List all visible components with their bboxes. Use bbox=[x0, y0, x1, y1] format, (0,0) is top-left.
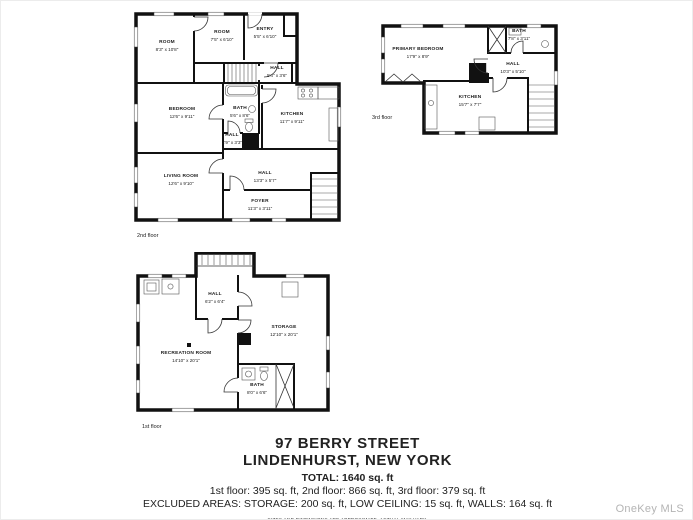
room-label: STORAGE 12'10" x 20'1" bbox=[270, 325, 298, 339]
room-name: HALL bbox=[222, 133, 242, 140]
room-dims: 10'3" x 5'10" bbox=[500, 69, 525, 76]
room-name: STORAGE bbox=[270, 325, 298, 332]
room-label: LIVING ROOM 12'6" x 9'10" bbox=[164, 174, 198, 188]
room-label: HALL 6'2" x 6'4" bbox=[205, 292, 225, 306]
room-label: HALL 13'3" x 5'7" bbox=[254, 171, 277, 185]
room-name: KITCHEN bbox=[459, 95, 482, 102]
room-dims: 13'3" x 5'7" bbox=[254, 178, 277, 185]
room-label: ENTRY 5'5" x 6'10" bbox=[254, 27, 277, 41]
room-dims: 5'5" x 6'10" bbox=[254, 34, 277, 41]
room-label: HALL 10'3" x 5'10" bbox=[500, 62, 525, 76]
floorplan-3rd-floor: PRIMARY BEDROOM 17'9" x 8'9" BATH 7'8" x… bbox=[381, 23, 559, 135]
room-name: BEDROOM bbox=[169, 107, 195, 114]
bathtub-icon bbox=[226, 85, 258, 96]
room-label: HALL 5'4" x 3'6" bbox=[267, 66, 287, 80]
chimney-block bbox=[242, 133, 259, 149]
room-label: FOYER 11'3" x 3'11" bbox=[248, 199, 273, 213]
floor-label-2nd: 2nd floor bbox=[137, 233, 158, 239]
room-name: LIVING ROOM bbox=[164, 174, 198, 181]
room-name: ROOM bbox=[156, 40, 179, 47]
stairs-icon bbox=[196, 254, 254, 266]
room-label: RECREATION ROOM 14'10" x 20'1" bbox=[161, 351, 212, 365]
room-dims: 5'4" x 3'6" bbox=[267, 73, 287, 80]
room-name: RECREATION ROOM bbox=[161, 351, 212, 358]
floorplan-1st-drawing bbox=[136, 252, 330, 414]
toilet-icon bbox=[260, 367, 268, 381]
room-dims: 7'5" x 6'10" bbox=[211, 37, 234, 44]
support-post bbox=[187, 343, 191, 347]
room-name: HALL bbox=[500, 62, 525, 69]
laundry-fixtures-icon bbox=[144, 279, 179, 294]
room-dims: 8'0" x 6'6" bbox=[247, 390, 267, 397]
room-label: ROOM 8'3" x 10'8" bbox=[156, 40, 179, 54]
address-block: 97 BERRY STREET LINDENHURST, NEW YORK TO… bbox=[1, 436, 693, 520]
toilet-icon bbox=[245, 119, 253, 132]
floorplan-1st-floor: HALL 6'2" x 6'4" STORAGE 12'10" x 20'1" … bbox=[136, 252, 330, 414]
room-name: BATH bbox=[508, 29, 530, 36]
floorplan-3rd-drawing bbox=[381, 23, 559, 135]
sink-icon bbox=[242, 368, 255, 380]
room-dims: 2'9" x 3'3" bbox=[222, 140, 242, 147]
room-name: HALL bbox=[267, 66, 287, 73]
excluded-areas: EXCLUDED AREAS: STORAGE: 200 sq. ft, LOW… bbox=[1, 498, 693, 510]
total-area: TOTAL: 1640 sq. ft bbox=[1, 472, 693, 484]
room-dims: 11'7" x 9'11" bbox=[280, 119, 305, 126]
chimney-block bbox=[238, 333, 251, 345]
room-name: BATH bbox=[247, 383, 267, 390]
closet-x-icon bbox=[488, 26, 506, 53]
storage-fixture-icon bbox=[282, 282, 298, 297]
room-name: HALL bbox=[254, 171, 277, 178]
address-city: LINDENHURST, NEW YORK bbox=[1, 453, 693, 470]
room-dims: 12'6" x 9'10" bbox=[164, 181, 198, 188]
floor-label-3rd: 3rd floor bbox=[372, 115, 392, 121]
floorplan-sheet: ROOM 8'3" x 10'8" ROOM 7'5" x 6'10" ENTR… bbox=[0, 0, 693, 520]
room-name: ROOM bbox=[211, 30, 234, 37]
stairs-icon bbox=[529, 85, 555, 127]
room-dims: 6'2" x 6'4" bbox=[205, 299, 225, 306]
room-name: FOYER bbox=[248, 199, 273, 206]
room-label: BATH 8'0" x 6'6" bbox=[247, 383, 267, 397]
room-label: KITCHEN 11'7" x 9'11" bbox=[280, 112, 305, 126]
onekey-mls-watermark: OneKey MLS bbox=[616, 503, 684, 515]
address-street: 97 BERRY STREET bbox=[1, 436, 693, 453]
room-label: BATH 5'6" x 8'6" bbox=[230, 106, 250, 120]
room-dims: 17'9" x 8'9" bbox=[392, 54, 443, 61]
floor-areas: 1st floor: 395 sq. ft, 2nd floor: 866 sq… bbox=[1, 485, 693, 497]
room-dims: 7'8" x 3'11" bbox=[508, 36, 530, 43]
room-label: BEDROOM 12'6" x 9'11" bbox=[169, 107, 195, 121]
room-dims: 12'10" x 20'1" bbox=[270, 332, 298, 339]
room-label: ROOM 7'5" x 6'10" bbox=[211, 30, 234, 44]
room-name: HALL bbox=[205, 292, 225, 299]
room-label: PRIMARY BEDROOM 17'9" x 8'9" bbox=[392, 47, 443, 61]
floorplan-2nd-floor: ROOM 8'3" x 10'8" ROOM 7'5" x 6'10" ENTR… bbox=[132, 9, 344, 225]
room-name: ENTRY bbox=[254, 27, 277, 34]
room-dims: 15'7" x 7'7" bbox=[459, 102, 482, 109]
room-dims: 14'10" x 20'1" bbox=[161, 358, 212, 365]
room-name: PRIMARY BEDROOM bbox=[392, 47, 443, 54]
shower-icon bbox=[276, 364, 294, 408]
room-name: BATH bbox=[230, 106, 250, 113]
room-label: HALL 2'9" x 3'3" bbox=[222, 133, 242, 147]
windows bbox=[136, 274, 330, 412]
room-dims: 11'3" x 3'11" bbox=[248, 206, 273, 213]
floor-label-1st: 1st floor bbox=[142, 424, 162, 430]
room-dims: 5'6" x 8'6" bbox=[230, 113, 250, 120]
low-ceiling-zigzag-icon bbox=[385, 74, 421, 82]
room-dims: 8'3" x 10'8" bbox=[156, 47, 179, 54]
room-label: KITCHEN 15'7" x 7'7" bbox=[459, 95, 482, 109]
room-label: BATH 7'8" x 3'11" bbox=[508, 29, 530, 43]
room-name: KITCHEN bbox=[280, 112, 305, 119]
room-dims: 12'6" x 9'11" bbox=[169, 114, 195, 121]
